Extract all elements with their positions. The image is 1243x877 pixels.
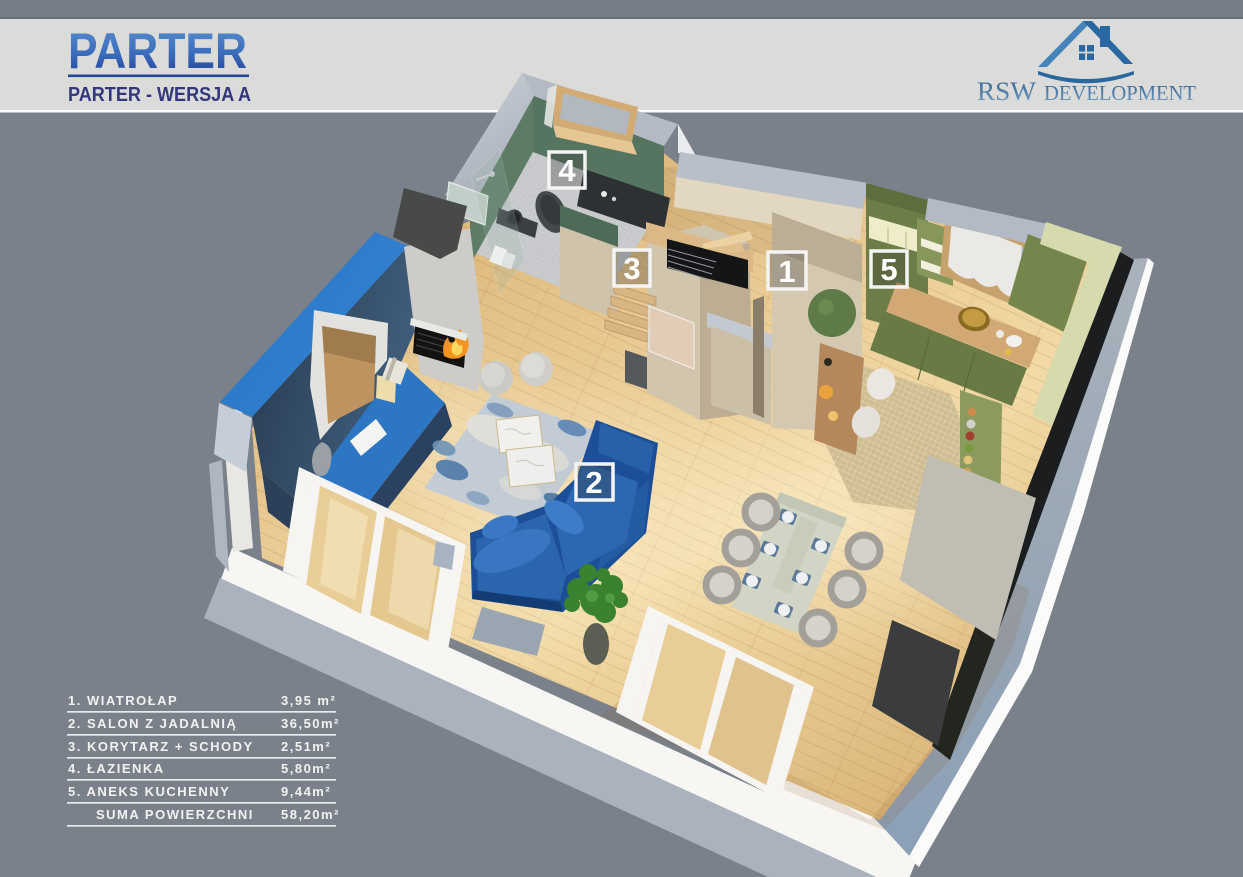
svg-text:5,80m²: 5,80m²	[281, 761, 331, 776]
svg-text:1: 1	[778, 254, 795, 289]
svg-text:SUMA POWIERZCHNI: SUMA POWIERZCHNI	[96, 807, 254, 822]
svg-text:2,51m²: 2,51m²	[281, 739, 331, 754]
svg-text:PARTER - WERSJA A: PARTER - WERSJA A	[68, 84, 251, 106]
svg-text:58,20m²: 58,20m²	[281, 807, 340, 822]
svg-text:2. SALON Z JADALNIĄ: 2. SALON Z JADALNIĄ	[68, 716, 237, 731]
svg-text:5. ANEKS KUCHENNY: 5. ANEKS KUCHENNY	[68, 784, 230, 799]
svg-text:4. ŁAZIENKA: 4. ŁAZIENKA	[68, 761, 165, 776]
svg-text:RSW: RSW	[977, 77, 1036, 106]
svg-text:3,95 m²: 3,95 m²	[281, 693, 336, 708]
svg-text:3: 3	[623, 251, 640, 286]
svg-text:9,44m²: 9,44m²	[281, 784, 331, 799]
svg-text:2: 2	[585, 465, 602, 500]
svg-text:1. WIATROŁAP: 1. WIATROŁAP	[68, 693, 178, 708]
svg-text:3. KORYTARZ + SCHODY: 3. KORYTARZ + SCHODY	[68, 739, 254, 754]
svg-text:4: 4	[558, 153, 576, 188]
svg-text:36,50m²: 36,50m²	[281, 716, 340, 731]
svg-text:DEVELOPMENT: DEVELOPMENT	[1044, 81, 1196, 105]
svg-text:PARTER: PARTER	[68, 23, 247, 79]
svg-text:5: 5	[880, 252, 897, 287]
